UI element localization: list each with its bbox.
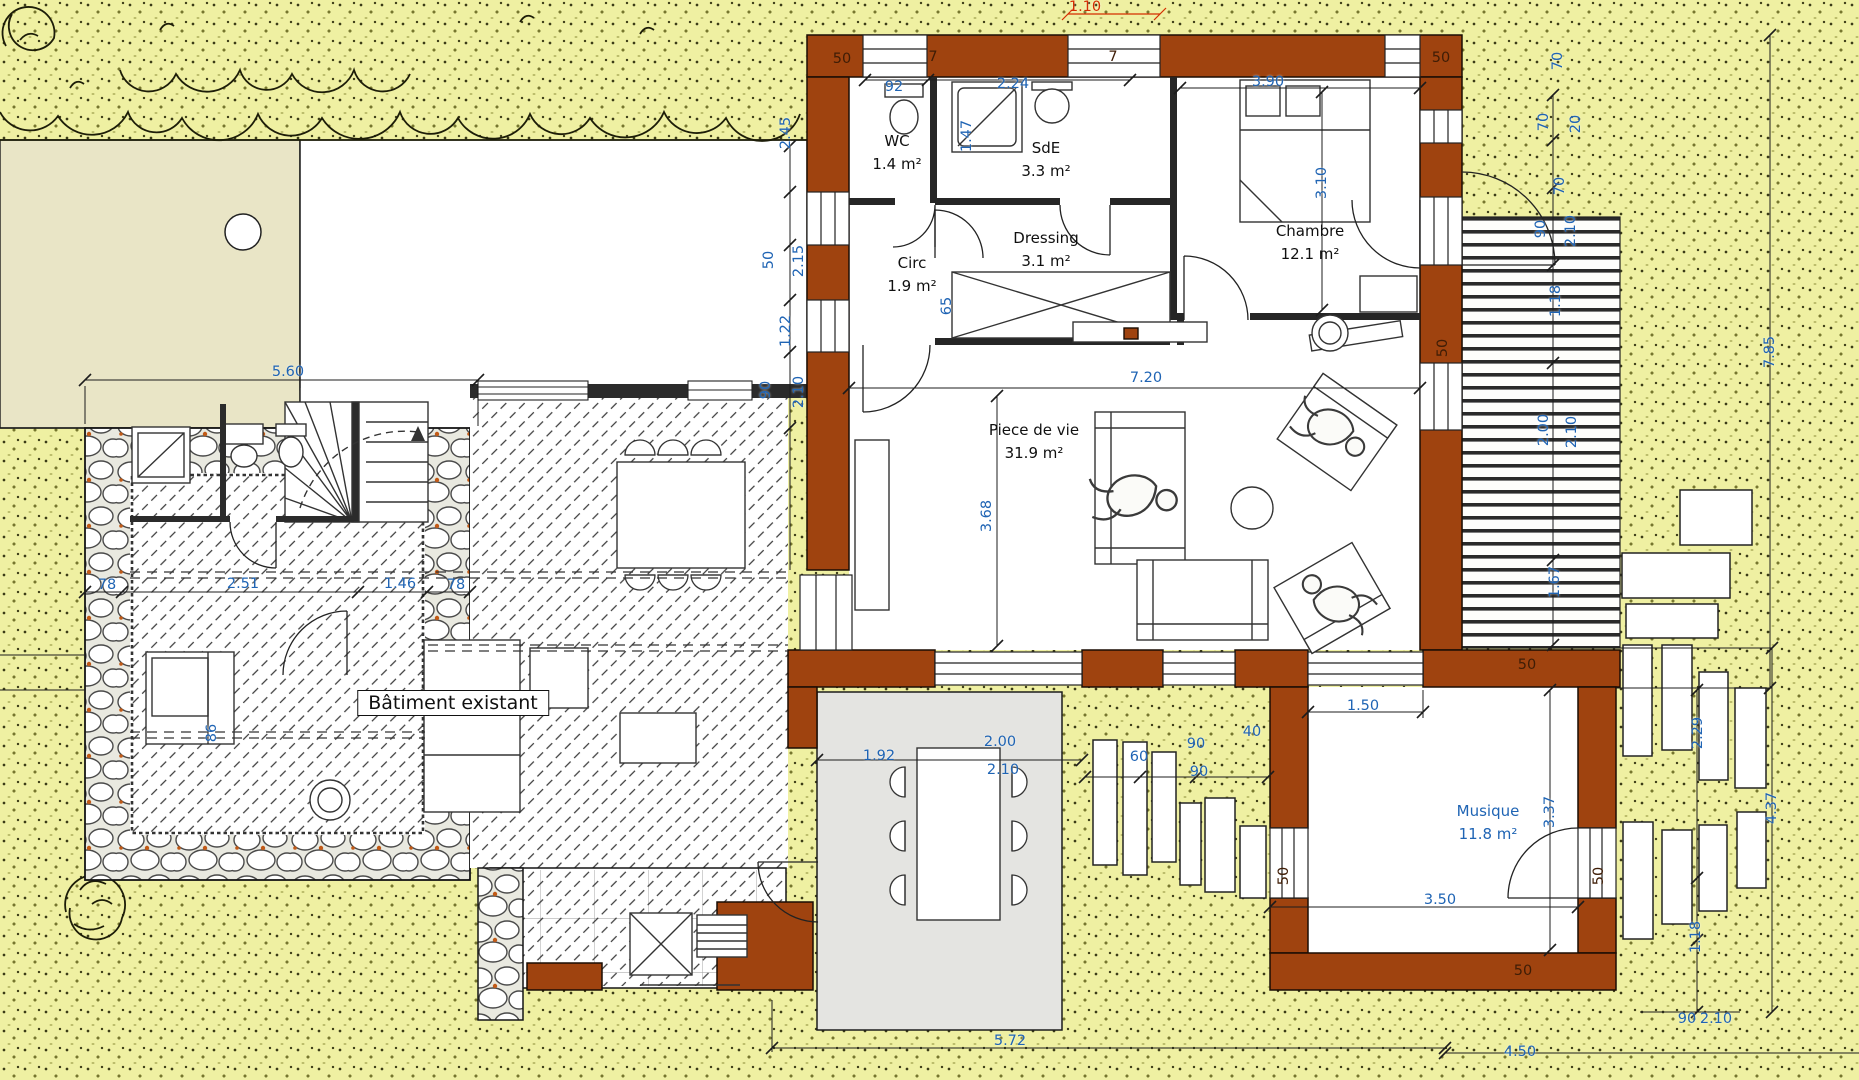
tree-circle-icon xyxy=(225,214,261,250)
room-label: SdE 3.3 m² xyxy=(1021,137,1070,184)
room-name: WC xyxy=(872,130,921,153)
dimension-label: 50 xyxy=(1514,963,1532,979)
dimension-label: 2.24 xyxy=(997,76,1029,92)
dimension-label: 1.67 xyxy=(1547,566,1563,598)
dimension-label: 50 xyxy=(1518,657,1536,673)
dimension-label: 2.51 xyxy=(227,576,259,592)
dimension-label: 4.50 xyxy=(1504,1044,1536,1060)
room-label: Dressing 3.1 m² xyxy=(1013,227,1078,274)
dimension-label: 2.00 xyxy=(984,734,1016,750)
dimension-label: 50 xyxy=(1435,339,1451,357)
bush-icon xyxy=(65,875,125,940)
dimension-label: 70 xyxy=(1550,52,1566,70)
dimension-label: 50 xyxy=(833,51,851,67)
dimension-label: 90 xyxy=(1190,764,1208,780)
dimension-label: 90 xyxy=(1678,1011,1696,1027)
room-area: 12.1 m² xyxy=(1276,243,1344,266)
room-name: Dressing xyxy=(1013,227,1078,250)
dimension-label: 3.50 xyxy=(1424,892,1456,908)
dimension-label: 1.47 xyxy=(959,120,975,152)
dimension-label: 20 xyxy=(1568,115,1584,133)
dimension-label: 1.22 xyxy=(778,315,794,347)
dimension-label: 40 xyxy=(1243,724,1261,740)
dimension-label: 90 xyxy=(1187,736,1205,752)
room-label: WC 1.4 m² xyxy=(872,130,921,177)
dimension-label: 50 xyxy=(761,251,777,269)
dimension-label: 7.85 xyxy=(1762,336,1778,368)
dimension-label: 2.10 xyxy=(1700,1011,1732,1027)
dimension-label: 2.10 xyxy=(791,376,807,408)
bush-icon xyxy=(2,7,54,50)
dimension-label: 3.90 xyxy=(1252,74,1284,90)
room-label: Musique 11.8 m² xyxy=(1457,800,1520,847)
dimension-label: 70 xyxy=(1536,113,1552,131)
dimension-label: 2.45 xyxy=(778,117,794,149)
dimension-label: 7.20 xyxy=(1130,370,1162,386)
existing-building-label: Bâtiment existant xyxy=(357,690,549,716)
room-name: Piece de vie xyxy=(989,419,1079,442)
dimension-label: 2.00 xyxy=(1536,414,1552,446)
room-label: Piece de vie 31.9 m² xyxy=(989,419,1079,466)
dimension-label: 3.10 xyxy=(1314,167,1330,199)
dimension-label: 3.68 xyxy=(979,500,995,532)
dimension-label: 1.50 xyxy=(1347,698,1379,714)
room-area: 3.1 m² xyxy=(1013,250,1078,273)
room-area: 31.9 m² xyxy=(989,442,1079,465)
dimension-label: 2.15 xyxy=(791,245,807,277)
dimension-label: 78 xyxy=(98,577,116,593)
dimension-label: 4.37 xyxy=(1764,792,1780,824)
dimension-label: 5.60 xyxy=(272,364,304,380)
dimension-label: 5.72 xyxy=(994,1033,1026,1049)
room-area: 3.3 m² xyxy=(1021,160,1070,183)
dimension-label: 2.10 xyxy=(1563,215,1579,247)
dimension-label: 1.92 xyxy=(863,748,895,764)
dimension-label: 7 xyxy=(928,49,937,65)
dimension-label: 92 xyxy=(885,79,903,95)
dimension-label: 90 xyxy=(758,381,774,399)
dimension-label: 1.18 xyxy=(1688,921,1704,953)
dimension-label: 65 xyxy=(939,297,955,315)
room-name: Circ xyxy=(887,252,936,275)
dimension-label: 1.18 xyxy=(1548,285,1564,317)
floor-plan-screenshot: 5.602.45502.151.22902.10507922.241.4771.… xyxy=(0,0,1859,1080)
dimension-label: 2.10 xyxy=(987,762,1019,778)
dimension-label: 1.46 xyxy=(384,576,416,592)
room-label: Circ 1.9 m² xyxy=(887,252,936,299)
dimension-label: 78 xyxy=(447,577,465,593)
dimension-label: 90 xyxy=(1533,220,1549,238)
dimension-label: 50 xyxy=(1276,867,1292,885)
room-area: 11.8 m² xyxy=(1457,823,1520,846)
dimension-label: 3.37 xyxy=(1542,796,1558,828)
dimension-label: 2.29 xyxy=(1690,717,1706,749)
room-area: 1.4 m² xyxy=(872,153,921,176)
dimension-label: 50 xyxy=(1591,867,1607,885)
room-label: Chambre 12.1 m² xyxy=(1276,220,1344,267)
dimension-label: 70 xyxy=(1552,177,1568,195)
room-area: 1.9 m² xyxy=(887,275,936,298)
room-name: Chambre xyxy=(1276,220,1344,243)
dimension-label: 1.10 xyxy=(1069,0,1101,15)
dimension-label: 7 xyxy=(1108,49,1117,65)
dimension-label: 2.10 xyxy=(1564,416,1580,448)
floor-plan-drawing xyxy=(0,0,1859,1080)
dimension-label: 50 xyxy=(1432,50,1450,66)
dimension-label: 86 xyxy=(204,724,220,742)
room-name: Musique xyxy=(1457,800,1520,823)
room-name: SdE xyxy=(1021,137,1070,160)
dimension-label: 60 xyxy=(1130,749,1148,765)
